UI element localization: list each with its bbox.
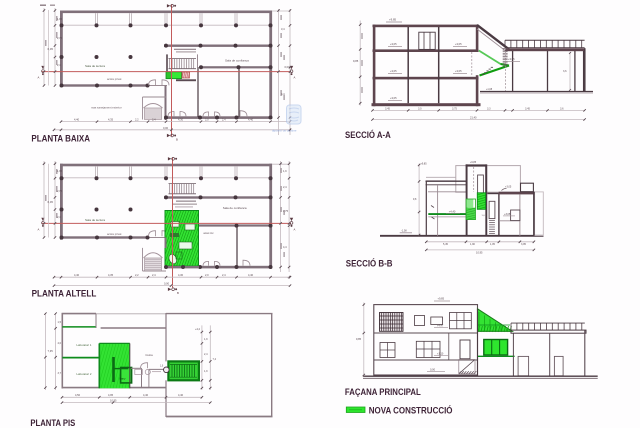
svg-text:2,4: 2,4 — [204, 353, 208, 356]
svg-text:A: A — [294, 76, 296, 80]
svg-text:2,4: 2,4 — [152, 273, 156, 277]
svg-text:B: B — [176, 138, 178, 142]
svg-text:1,9: 1,9 — [204, 370, 208, 373]
svg-text:Sala de confianca: Sala de confianca — [225, 59, 249, 63]
svg-text:+4,47: +4,47 — [437, 325, 444, 328]
svg-text:SECCIÓ A-A: SECCIÓ A-A — [345, 129, 391, 141]
svg-text:0,00: 0,00 — [430, 367, 436, 371]
svg-text:3,45: 3,45 — [385, 107, 390, 110]
svg-text:2,4: 2,4 — [222, 273, 226, 277]
svg-text:Laboratori 1: Laboratori 1 — [77, 343, 92, 347]
svg-text:4,40: 4,40 — [248, 273, 254, 277]
svg-text:2,75: 2,75 — [57, 36, 63, 40]
svg-text:Cuina: Cuina — [145, 353, 153, 357]
svg-text:1,90: 1,90 — [470, 243, 475, 246]
svg-text:+9,85: +9,85 — [438, 297, 445, 301]
svg-text:2,4: 2,4 — [152, 118, 156, 122]
svg-text:+9,85: +9,85 — [389, 18, 397, 22]
svg-text:2,4: 2,4 — [57, 63, 61, 67]
svg-text:0,00: 0,00 — [163, 126, 169, 130]
svg-text:4,40: 4,40 — [74, 118, 80, 122]
svg-text:3,7: 3,7 — [58, 372, 62, 375]
svg-text:PLANTA ALTELL: PLANTA ALTELL — [32, 288, 97, 299]
svg-text:6,45: 6,45 — [48, 47, 54, 51]
svg-text:4,95: 4,95 — [108, 393, 114, 397]
svg-text:2,0: 2,0 — [205, 118, 209, 122]
svg-text:NOVA CONSTRUCCIÓ: NOVA CONSTRUCCIÓ — [369, 405, 453, 417]
svg-text:1,95: 1,95 — [57, 169, 63, 173]
svg-text:9,85: 9,85 — [356, 337, 362, 341]
svg-text:A: A — [38, 76, 40, 80]
svg-text:4,0: 4,0 — [58, 342, 62, 345]
svg-text:7,4: 7,4 — [213, 358, 217, 361]
svg-text:A: A — [294, 228, 296, 232]
svg-text:2,2: 2,2 — [135, 118, 139, 122]
svg-text:amet inc: amet inc — [203, 231, 214, 235]
svg-text:0,00: 0,00 — [285, 65, 291, 69]
svg-text:2,4: 2,4 — [57, 215, 61, 219]
svg-text:1,9: 1,9 — [283, 169, 287, 173]
svg-text:Sala de confianca: Sala de confianca — [223, 206, 247, 210]
svg-text:+3,05: +3,05 — [390, 42, 397, 46]
svg-text:PLANTA PIS: PLANTA PIS — [30, 418, 75, 428]
svg-text:+1,08: +1,08 — [486, 88, 493, 91]
svg-text:3,6: 3,6 — [563, 70, 567, 73]
svg-text:7,35: 7,35 — [48, 349, 54, 353]
svg-text:4,40: 4,40 — [74, 273, 80, 277]
svg-text:mas sanejament exterior: mas sanejament exterior — [91, 106, 122, 110]
svg-text:A: A — [38, 228, 40, 232]
svg-text:Bany: Bany — [120, 377, 127, 381]
svg-text:4,50: 4,50 — [75, 393, 81, 397]
svg-text:1,5: 1,5 — [58, 321, 62, 324]
svg-text:+3,05: +3,05 — [508, 57, 515, 61]
svg-text:Sala de lectura: Sala de lectura — [85, 218, 105, 222]
svg-text:+3,05: +3,05 — [505, 185, 512, 188]
svg-text:1,9: 1,9 — [204, 338, 208, 341]
svg-text:4,30: 4,30 — [178, 273, 184, 277]
svg-text:0,00: 0,00 — [164, 282, 170, 286]
svg-text:+3,05: +3,05 — [455, 69, 462, 73]
svg-text:1,05: 1,05 — [490, 243, 495, 246]
svg-text:2,2: 2,2 — [135, 273, 139, 277]
svg-text:4,40: 4,40 — [143, 393, 149, 397]
svg-text:4,40: 4,40 — [248, 118, 254, 122]
svg-text:4,40: 4,40 — [178, 393, 184, 397]
svg-text:+1,10: +1,10 — [437, 353, 444, 356]
svg-text:2,4: 2,4 — [283, 185, 287, 189]
svg-text:+3,05: +3,05 — [390, 96, 397, 100]
svg-text:accés privat: accés privat — [107, 77, 122, 81]
svg-text:21,40: 21,40 — [470, 116, 477, 120]
svg-text:+3,05: +3,05 — [390, 69, 397, 73]
svg-text:10,95: 10,95 — [110, 399, 117, 403]
svg-text:4,30: 4,30 — [178, 118, 184, 122]
svg-text:-1,08: -1,08 — [401, 230, 407, 233]
svg-text:3,75: 3,75 — [452, 107, 457, 110]
svg-text:+9,85: +9,85 — [421, 163, 428, 166]
svg-text:3,0: 3,0 — [418, 107, 422, 110]
svg-text:3,95: 3,95 — [521, 243, 526, 246]
svg-text:Sala de lectura: Sala de lectura — [85, 64, 105, 68]
svg-text:2,0: 2,0 — [205, 273, 209, 277]
svg-text:+9,85: +9,85 — [470, 161, 477, 164]
svg-text:dipòsit l'us obstine: dipòsit l'us obstine — [272, 129, 297, 133]
svg-text:3,3: 3,3 — [487, 107, 491, 110]
svg-text:PLANTA BAIXA: PLANTA BAIXA — [31, 133, 90, 144]
svg-text:accés privat: accés privat — [107, 232, 122, 236]
svg-text:4,35: 4,35 — [108, 118, 114, 122]
svg-text:1,95: 1,95 — [57, 17, 63, 21]
svg-text:B: B — [177, 291, 179, 295]
svg-text:Laboratori 2: Laboratori 2 — [77, 372, 92, 376]
svg-text:FAÇANA PRINCIPAL: FAÇANA PRINCIPAL — [345, 387, 421, 398]
svg-text:2,75: 2,75 — [57, 189, 63, 193]
svg-text:4,4: 4,4 — [283, 245, 287, 249]
svg-text:3,4: 3,4 — [281, 27, 285, 31]
svg-text:+4,4: +4,4 — [195, 328, 201, 331]
svg-text:4,35: 4,35 — [108, 273, 114, 277]
svg-text:9,85: 9,85 — [353, 59, 359, 63]
svg-text:5,45: 5,45 — [443, 243, 448, 246]
svg-text:10,95: 10,95 — [476, 251, 483, 255]
svg-text:+3,05: +3,05 — [455, 42, 462, 46]
svg-text:6,45: 6,45 — [48, 200, 54, 204]
svg-text:3,6: 3,6 — [560, 107, 564, 110]
svg-text:+4,40: +4,40 — [449, 210, 456, 214]
svg-text:SECCIÓ B-B: SECCIÓ B-B — [346, 258, 393, 270]
svg-text:2,4: 2,4 — [222, 118, 226, 122]
svg-text:3,45: 3,45 — [525, 107, 530, 110]
